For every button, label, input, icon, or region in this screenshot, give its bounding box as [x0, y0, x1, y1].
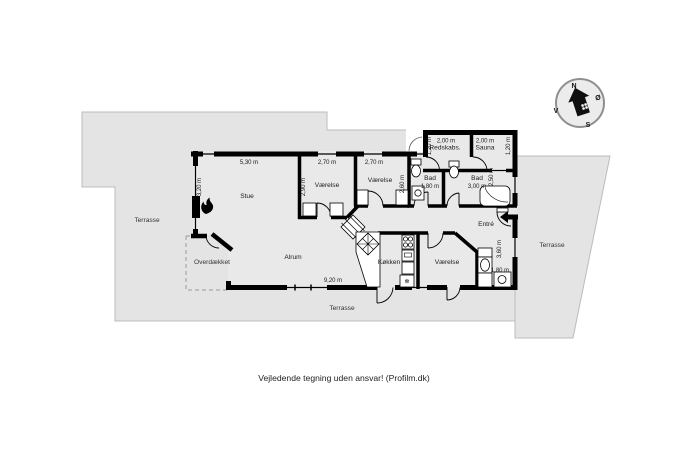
- measure-bad2-depth: 2,50 m: [489, 168, 495, 186]
- measure-sauna-depth: 1,20 m: [506, 137, 512, 155]
- area-label-terrasse-left: Terrasse: [134, 217, 160, 224]
- room-label-stue: Stue: [240, 193, 254, 200]
- area-label-overdaekket: Overdækket: [194, 259, 230, 266]
- measure-alrum-width: 9,20 m: [324, 278, 342, 284]
- room-label-redskabs: Redskabs.: [429, 145, 460, 152]
- measure-vaerelse1-width: 2,70 m: [318, 160, 336, 166]
- wardrobe: [303, 203, 316, 216]
- measure-vaerelse2-depth: 2,60 m: [400, 175, 406, 193]
- room-label-vaerelse-2: Værelse: [368, 177, 393, 184]
- compass-north: N: [571, 83, 576, 90]
- wardrobe: [357, 190, 368, 205]
- measure-sauna-width: 2,00 m: [476, 139, 494, 145]
- compass-west: V: [554, 108, 559, 115]
- room-label-bad-2: Bad: [471, 175, 483, 182]
- counter: [402, 262, 414, 274]
- entry-sink: [494, 272, 511, 287]
- measure-vaerelse2-width: 2,70 m: [365, 160, 383, 166]
- measure-bad1-width: 1,80 m: [421, 184, 439, 190]
- freezer-icon: ❄: [404, 278, 410, 286]
- measure-redskabs-depth: 1,20 m: [427, 137, 433, 155]
- measure-stue-depth: 3,20 m: [197, 178, 203, 196]
- closet: [478, 273, 492, 287]
- toilet: [449, 161, 459, 178]
- compass-south: S: [586, 122, 591, 129]
- room-label-vaerelse-3: Værelse: [435, 259, 460, 266]
- oven: [402, 250, 414, 261]
- stove: [402, 235, 414, 249]
- closet: [478, 248, 492, 257]
- room-label-vaerelse-1: Værelse: [315, 182, 340, 189]
- floorplan-canvas: ❄ Stue Værelse Værelse Værelse Alrum Køk…: [0, 0, 687, 462]
- room-label-bad-1: Bad: [424, 175, 436, 182]
- disclaimer-caption: Vejledende tegning uden ansvar! (Profilm…: [258, 373, 430, 383]
- measure-entry-width: 1,80 m: [491, 268, 509, 274]
- wardrobe: [330, 203, 343, 216]
- measure-redskabs-width: 2,00 m: [437, 139, 455, 145]
- measure-bad2-width: 3,00 m: [468, 184, 486, 190]
- measure-entry-depth: 3,60 m: [497, 240, 503, 258]
- compass-east: Ø: [595, 95, 601, 102]
- room-label-alrum: Alrum: [284, 254, 302, 261]
- toilet: [411, 159, 421, 177]
- area-label-terrasse-bottom: Terrasse: [329, 305, 355, 312]
- room-label-entre: Entré: [478, 221, 494, 228]
- compass-rose: N Ø S V: [554, 79, 604, 129]
- room-label-koekken: Køkken: [378, 259, 401, 266]
- measure-stue-width: 5,30 m: [240, 160, 258, 166]
- room-label-sauna: Sauna: [475, 145, 494, 152]
- measure-vaerelse1-depth: 2,90 m: [301, 178, 307, 196]
- area-label-terrasse-right: Terrasse: [539, 242, 565, 249]
